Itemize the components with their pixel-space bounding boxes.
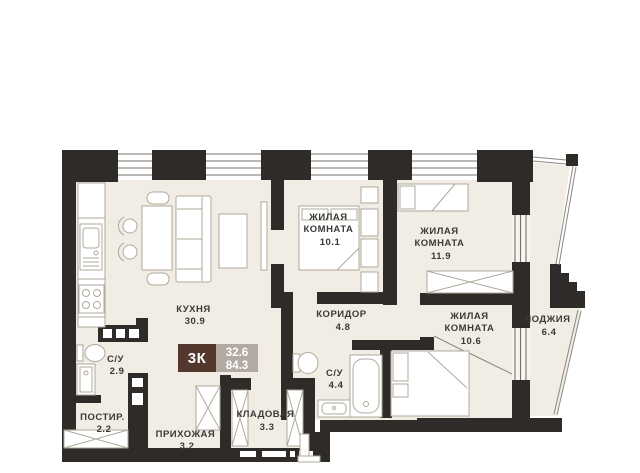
badge-rooms-label: 3К <box>188 350 207 367</box>
kitchen-counter <box>78 183 105 327</box>
badge-living-area: 32.6 <box>226 347 248 359</box>
wardrobe-bedroom2 <box>427 271 513 293</box>
toilet <box>298 353 318 374</box>
window-bedroom1 <box>311 154 368 175</box>
room-label-bathroom2: С/У 4.4 <box>326 368 346 391</box>
bedroom1-dressers <box>361 187 378 292</box>
sideboard <box>219 214 247 268</box>
floor-plan: КУХНЯ 30.9 ЖИЛАЯ КОМНАТА 10.1 ЖИЛАЯ КОМН… <box>0 0 640 473</box>
bed-bedroom3 <box>391 351 469 416</box>
loggia-steps-wall <box>550 264 585 308</box>
apartment-badge: 3К 32.6 84.3 <box>178 344 258 372</box>
window-kitchen-2 <box>206 154 261 175</box>
toilet-2 <box>85 345 105 362</box>
floor-plan-page: КУХНЯ 30.9 ЖИЛАЯ КОМНАТА 10.1 ЖИЛАЯ КОМН… <box>0 0 640 473</box>
tv <box>261 202 267 270</box>
window-bedroom2-top <box>412 154 477 175</box>
room-label-bathroom1: С/У 2.9 <box>107 354 127 377</box>
bed-bedroom2 <box>398 184 468 211</box>
kitchen-stove <box>79 285 104 313</box>
badge-total-area: 84.3 <box>226 360 248 372</box>
toilet-tank-2 <box>77 345 83 361</box>
wardrobe-hallway <box>196 386 220 430</box>
window-kitchen-1 <box>118 154 152 175</box>
sofa <box>176 196 211 282</box>
